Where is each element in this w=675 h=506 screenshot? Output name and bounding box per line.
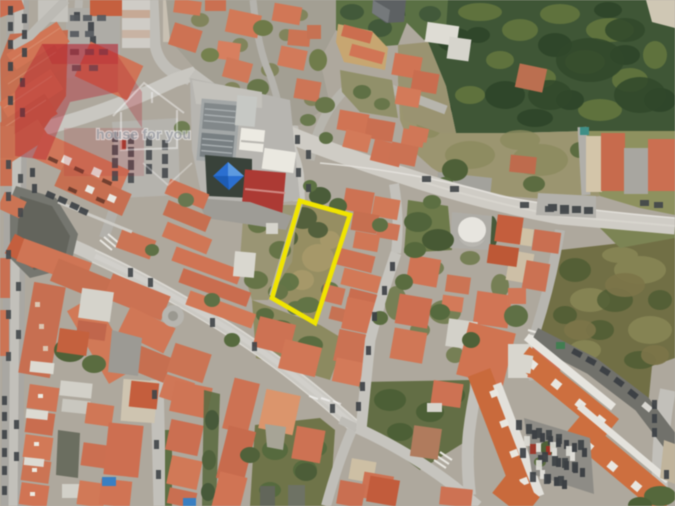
svg-text:house for you: house for you (96, 126, 191, 142)
